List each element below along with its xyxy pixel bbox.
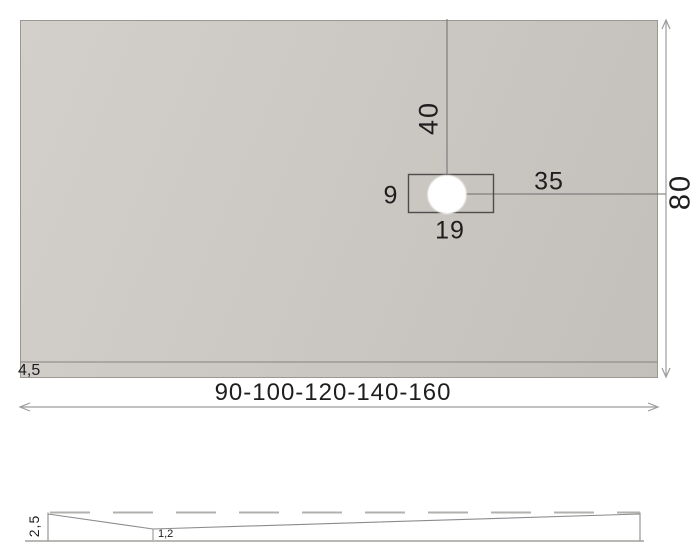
diagram-linework xyxy=(0,0,700,560)
diagram-canvas: 40 9 19 35 80 4,5 90-100-120-140-160 2,5… xyxy=(0,0,700,560)
dim-label-drain-from-top: 40 xyxy=(416,101,443,135)
dim-label-drain-cutout-width: 19 xyxy=(435,219,465,244)
dim-label-min-thickness: 1,2 xyxy=(158,529,173,540)
dim-label-drain-cutout-height: 9 xyxy=(384,184,399,209)
dim-label-drain-from-right: 35 xyxy=(534,170,564,195)
dim-label-border-width: 4,5 xyxy=(18,363,40,379)
dim-label-edge-height: 2,5 xyxy=(27,515,41,537)
profile-view xyxy=(25,513,644,542)
dim-label-width-options: 90-100-120-140-160 xyxy=(215,381,452,405)
dim-label-tray-depth: 80 xyxy=(667,174,696,210)
drain-hole xyxy=(428,175,467,214)
